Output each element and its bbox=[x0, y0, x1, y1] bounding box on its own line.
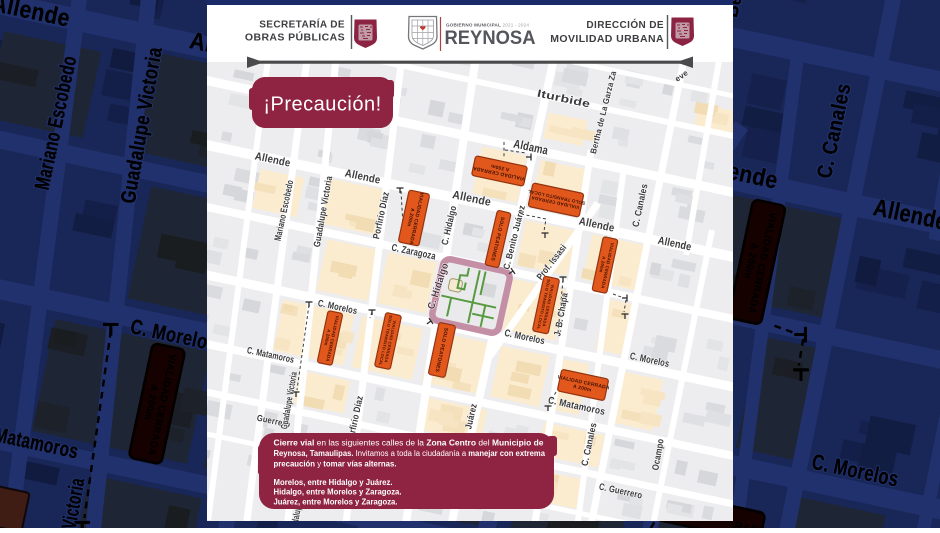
svg-text:¡Precaución!: ¡Precaución! bbox=[263, 94, 381, 116]
svg-text:DIRECCIÓN DE: DIRECCIÓN DE bbox=[586, 18, 664, 31]
svg-text:OBRAS PÚBLICAS: OBRAS PÚBLICAS bbox=[245, 31, 345, 44]
svg-text:SECRETARÍA DE: SECRETARÍA DE bbox=[259, 18, 345, 31]
svg-text:MOVILIDAD URBANA: MOVILIDAD URBANA bbox=[550, 33, 664, 45]
svg-text:GOBIERNO MUNICIPAL 2021 - 2024: GOBIERNO MUNICIPAL 2021 - 2024 bbox=[446, 23, 529, 28]
svg-text:REYNOSA: REYNOSA bbox=[445, 28, 536, 49]
